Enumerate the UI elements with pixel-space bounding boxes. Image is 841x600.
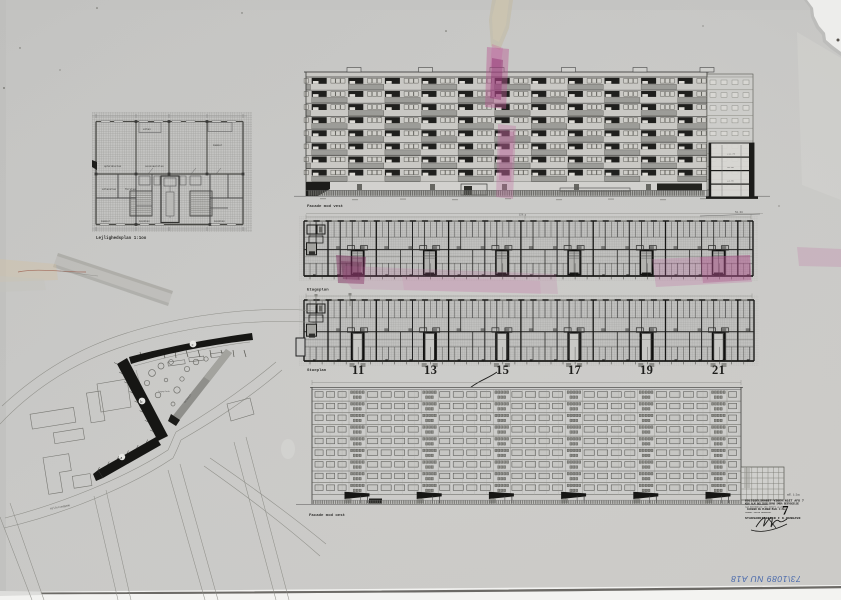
svg-text:forstue: forstue — [125, 187, 136, 191]
svg-text:a: a — [121, 455, 123, 460]
svg-text:legeplads: legeplads — [158, 390, 171, 393]
svg-text:altan: altan — [143, 127, 151, 131]
svg-text:Facade mod vest: Facade mod vest — [307, 204, 344, 209]
svg-text:158.o: 158.o — [519, 214, 527, 217]
svg-text:koekken: koekken — [214, 219, 225, 223]
svg-text:11: 11 — [352, 363, 365, 377]
svg-text:mål 1:2oo: mål 1:2oo — [787, 494, 800, 497]
svg-text:b: b — [140, 399, 142, 404]
svg-text:STADSARKITEKTEN I K.BENHAVN: STADSARKITEKTEN I K.BENHAVN — [745, 516, 801, 520]
svg-text:kammer: kammer — [101, 219, 111, 223]
svg-text:+8.70: +8.70 — [727, 166, 734, 169]
svg-text:52.60: 52.60 — [735, 211, 743, 214]
svg-text:19: 19 — [640, 363, 653, 377]
svg-text:c: c — [192, 342, 194, 347]
svg-text:altanstue: altanstue — [102, 187, 116, 191]
svg-text:kammer: kammer — [213, 143, 223, 147]
svg-text:koekken: koekken — [139, 219, 150, 223]
svg-text:21: 21 — [712, 363, 725, 377]
svg-text:+4.70: +4.70 — [727, 180, 734, 183]
svg-text:13: 13 — [424, 363, 437, 377]
svg-text:TEGNET KONTR GODKEN: TEGNET KONTR GODKENDT — [745, 511, 772, 514]
svg-text:15: 15 — [496, 363, 509, 377]
svg-text:Etageplan: Etageplan — [307, 288, 329, 293]
svg-text:sovevaerelse: sovevaerelse — [145, 164, 164, 168]
svg-text:17: 17 — [568, 363, 581, 377]
svg-text:Lejlighedsplan 1:1oo: Lejlighedsplan 1:1oo — [96, 236, 147, 241]
svg-text:Stueplan: Stueplan — [307, 368, 327, 373]
svg-text:+12.70: +12.70 — [727, 153, 736, 156]
svg-text:73\1089 NU A18: 73\1089 NU A18 — [731, 574, 801, 584]
svg-text:Facade mod oest: Facade mod oest — [309, 513, 346, 518]
svg-text:opholdsstue: opholdsstue — [104, 164, 122, 168]
